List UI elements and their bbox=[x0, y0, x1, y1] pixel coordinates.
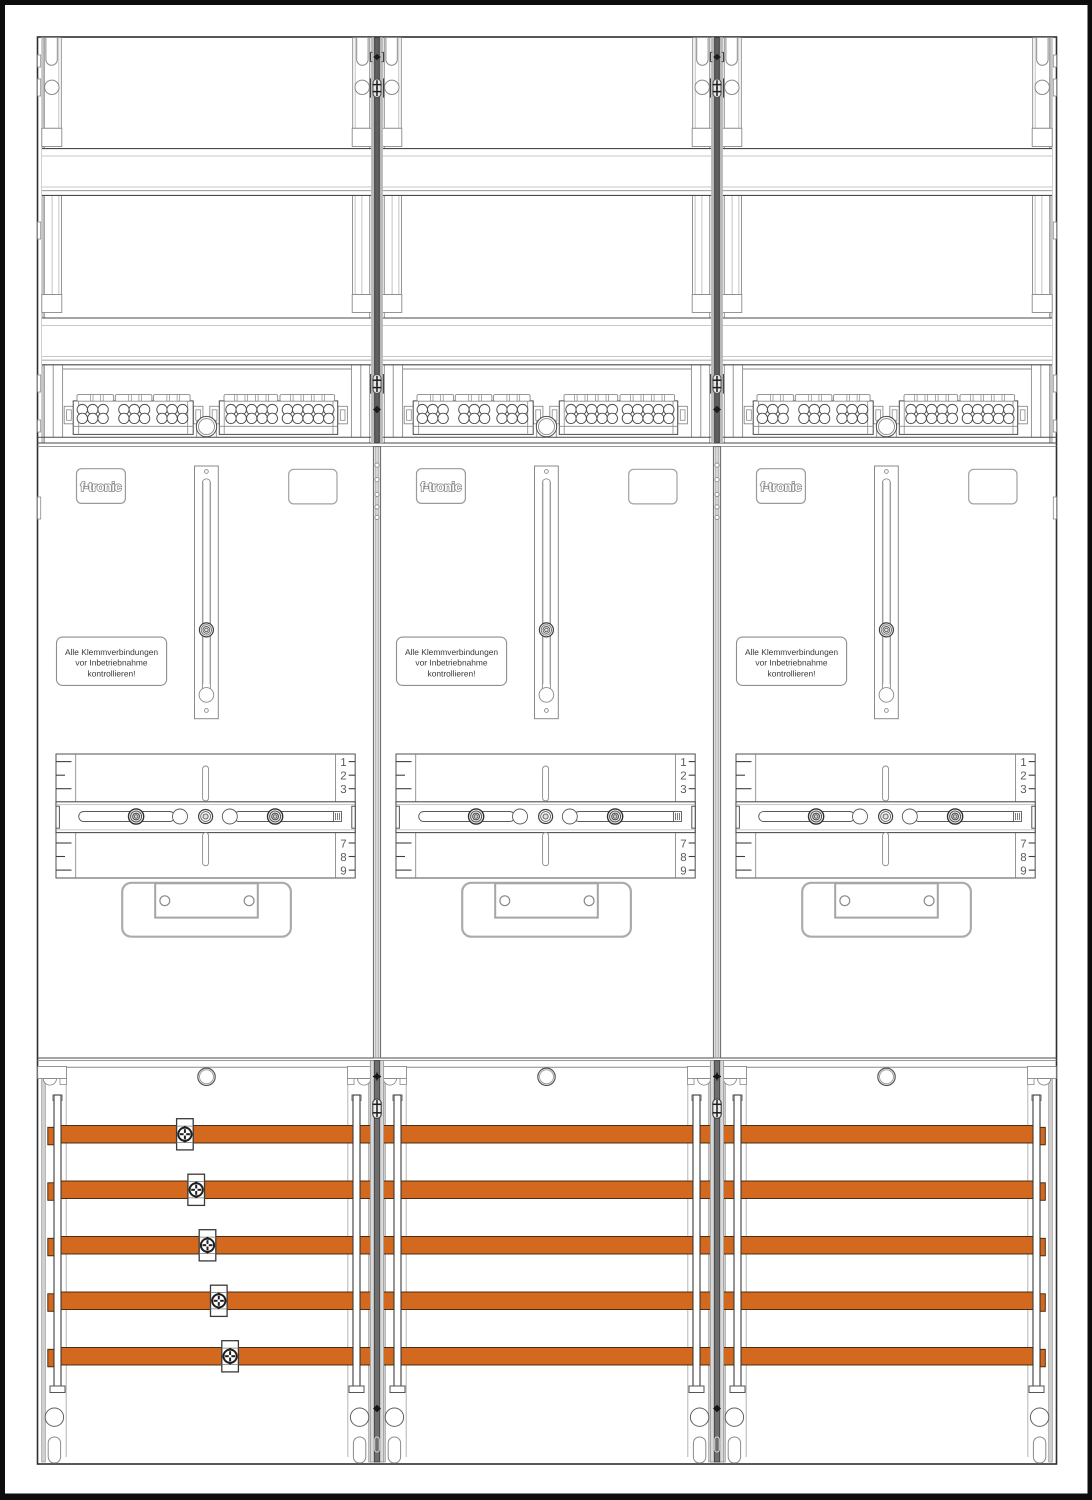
svg-text:9: 9 bbox=[340, 866, 346, 878]
svg-text:1: 1 bbox=[340, 757, 346, 769]
svg-text:2: 2 bbox=[680, 770, 686, 782]
svg-text:f-tronic: f-tronic bbox=[420, 480, 461, 494]
svg-text:8: 8 bbox=[340, 852, 346, 864]
svg-text:vor Inbetriebnahme: vor Inbetriebnahme bbox=[75, 658, 148, 668]
svg-text:f-tronic: f-tronic bbox=[80, 480, 121, 494]
svg-text:7: 7 bbox=[340, 838, 346, 850]
svg-text:kontrollieren!: kontrollieren! bbox=[428, 668, 476, 678]
svg-text:vor Inbetriebnahme: vor Inbetriebnahme bbox=[755, 658, 828, 668]
svg-text:1: 1 bbox=[1020, 757, 1026, 769]
svg-text:Alle Klemmverbindungen: Alle Klemmverbindungen bbox=[405, 647, 498, 657]
svg-text:1: 1 bbox=[680, 757, 686, 769]
svg-text:2: 2 bbox=[340, 770, 346, 782]
svg-text:kontrollieren!: kontrollieren! bbox=[768, 668, 816, 678]
svg-text:Alle Klemmverbindungen: Alle Klemmverbindungen bbox=[745, 647, 838, 657]
svg-text:7: 7 bbox=[680, 838, 686, 850]
svg-text:9: 9 bbox=[1020, 866, 1026, 878]
svg-text:3: 3 bbox=[1020, 784, 1026, 796]
svg-text:3: 3 bbox=[680, 784, 686, 796]
svg-text:8: 8 bbox=[680, 852, 686, 864]
svg-text:8: 8 bbox=[1020, 852, 1026, 864]
svg-text:3: 3 bbox=[340, 784, 346, 796]
svg-text:2: 2 bbox=[1020, 770, 1026, 782]
svg-text:9: 9 bbox=[680, 866, 686, 878]
svg-text:f-tronic: f-tronic bbox=[760, 480, 801, 494]
svg-text:kontrollieren!: kontrollieren! bbox=[88, 668, 136, 678]
svg-text:vor Inbetriebnahme: vor Inbetriebnahme bbox=[415, 658, 488, 668]
svg-text:Alle Klemmverbindungen: Alle Klemmverbindungen bbox=[65, 647, 158, 657]
svg-text:7: 7 bbox=[1020, 838, 1026, 850]
